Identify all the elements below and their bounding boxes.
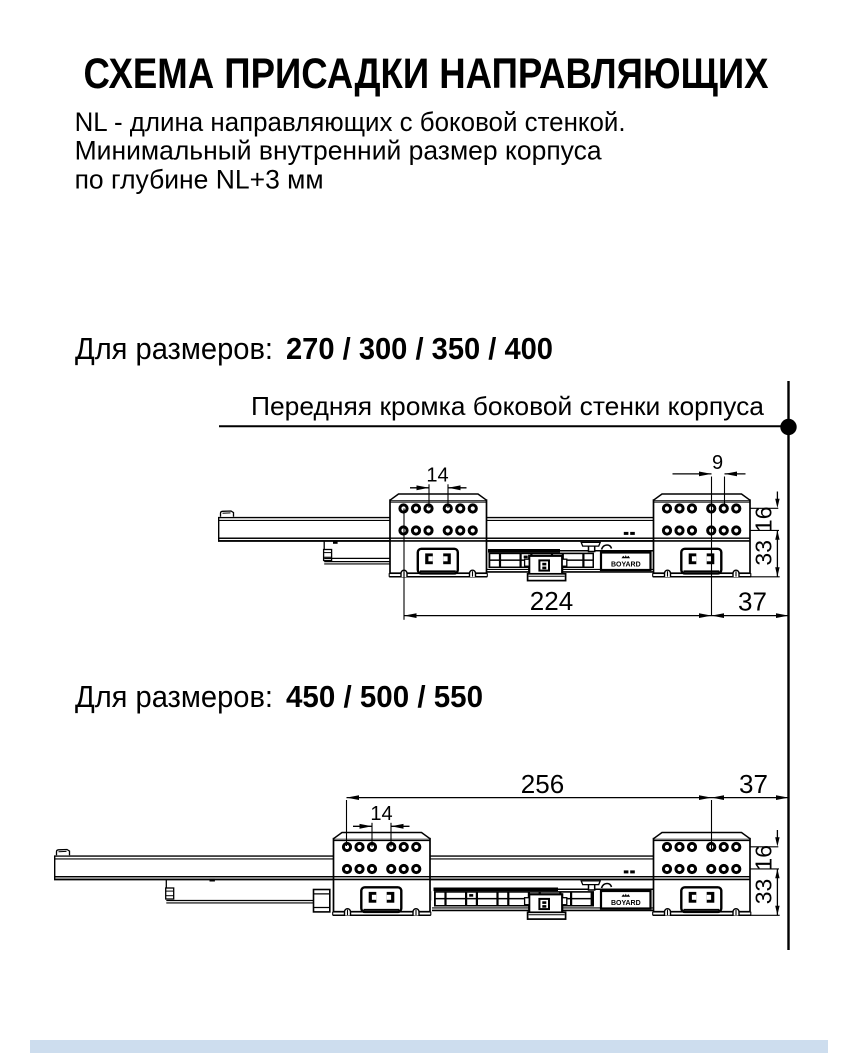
svg-text:450 / 500 / 550: 450 / 500 / 550 <box>286 679 483 714</box>
svg-text:BOYARD: BOYARD <box>611 561 641 568</box>
svg-text:Для размеров:: Для размеров: <box>75 679 273 714</box>
svg-text:NL - длина направляющих с боко: NL - длина направляющих с боковой стенко… <box>75 107 626 137</box>
svg-text:33: 33 <box>751 879 777 905</box>
svg-text:BOYARD: BOYARD <box>611 900 641 907</box>
svg-text:по глубине NL+3 мм: по глубине NL+3 мм <box>75 164 324 194</box>
svg-text:14: 14 <box>426 465 448 487</box>
svg-text:9: 9 <box>712 452 723 474</box>
svg-text:224: 224 <box>530 586 573 616</box>
svg-text:16: 16 <box>751 845 777 871</box>
svg-text:37: 37 <box>738 587 767 617</box>
svg-text:270 / 300 / 350 / 400: 270 / 300 / 350 / 400 <box>286 331 553 366</box>
svg-text:37: 37 <box>739 769 768 799</box>
svg-text:СХЕМА ПРИСАДКИ НАПРАВЛЯЮЩИХ: СХЕМА ПРИСАДКИ НАПРАВЛЯЮЩИХ <box>84 51 769 98</box>
svg-text:33: 33 <box>751 540 777 566</box>
svg-text:Минимальный внутренний размер: Минимальный внутренний размер корпуса <box>75 136 602 166</box>
svg-text:Для размеров:: Для размеров: <box>75 331 273 366</box>
svg-text:256: 256 <box>521 769 564 799</box>
svg-text:Передняя кромка боковой стенки: Передняя кромка боковой стенки корпуса <box>251 393 765 421</box>
svg-text:16: 16 <box>751 507 777 533</box>
svg-text:14: 14 <box>370 803 392 825</box>
